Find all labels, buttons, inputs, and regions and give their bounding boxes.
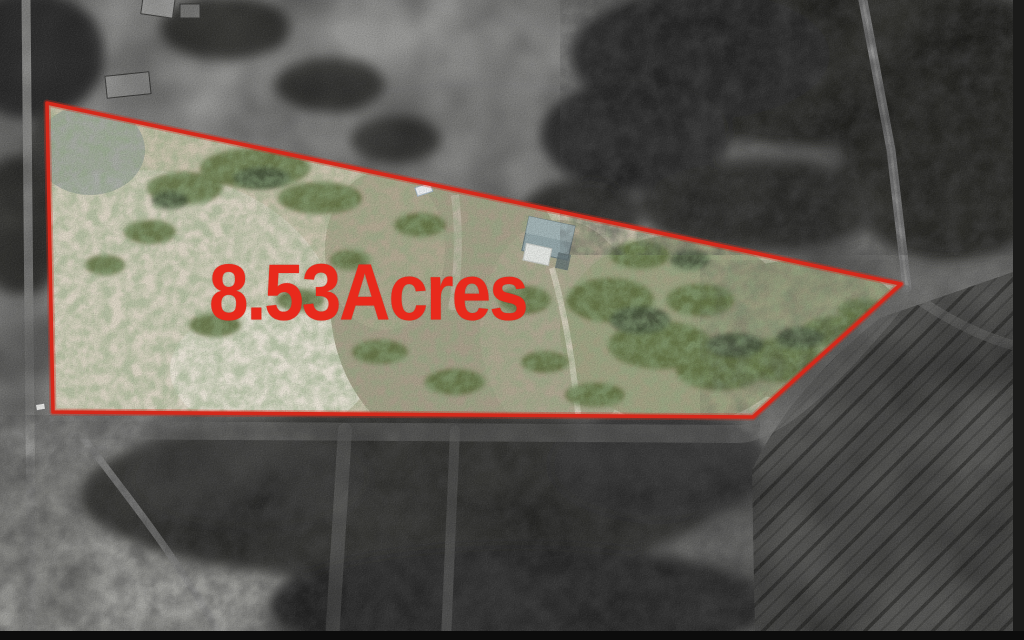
bottom-crop-bar	[0, 631, 1024, 640]
acreage-label: 8.53Acres	[209, 248, 527, 339]
right-crop-bar	[1013, 0, 1024, 640]
aerial-property-photo: 8.53Acres	[0, 0, 1024, 640]
